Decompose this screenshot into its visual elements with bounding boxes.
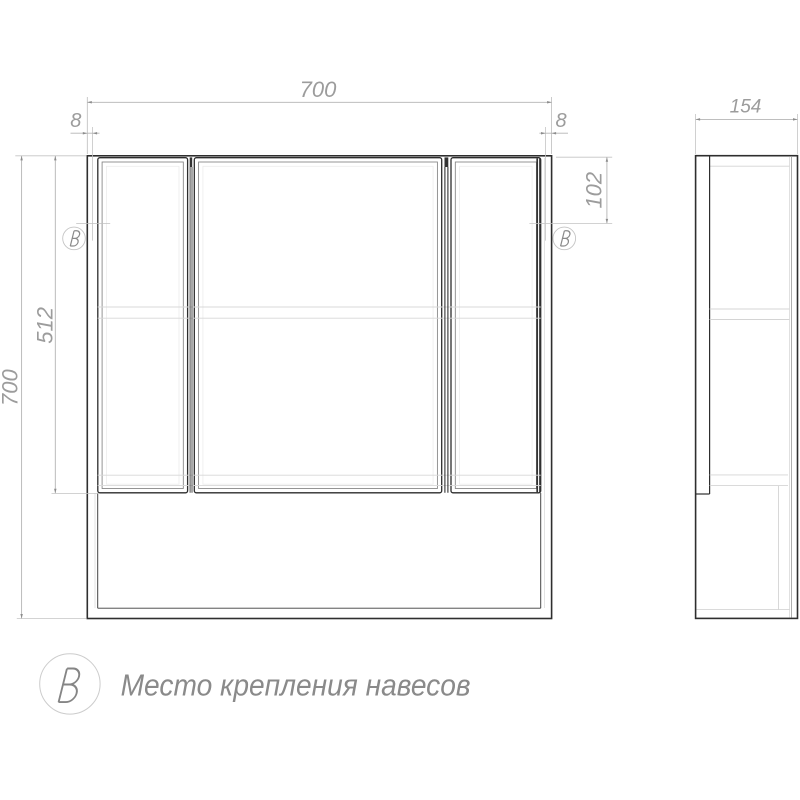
svg-text:8: 8 (70, 110, 81, 132)
svg-text:512: 512 (32, 307, 57, 344)
svg-text:102: 102 (582, 172, 607, 209)
svg-text:8: 8 (555, 110, 566, 132)
svg-text:700: 700 (300, 77, 337, 102)
svg-text:154: 154 (730, 97, 762, 118)
svg-text:700: 700 (0, 368, 23, 405)
svg-text:Место крепления навесов: Место крепления навесов (121, 667, 471, 702)
